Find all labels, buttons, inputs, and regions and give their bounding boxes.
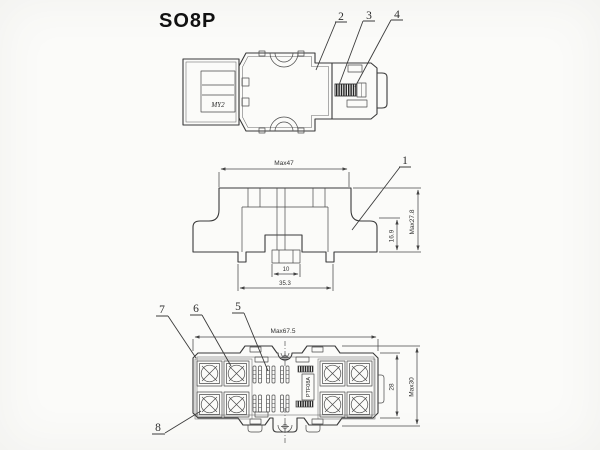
release-clip-top: [242, 78, 249, 86]
hatched-slot: [298, 366, 313, 372]
dim-label-inner-height: 28: [389, 383, 396, 391]
hatched-slot: [296, 401, 313, 407]
bump-slot: [312, 347, 323, 352]
bump-slot: [312, 419, 323, 424]
dim-label-base-width: 35.3: [279, 281, 291, 287]
dim-label-overall-width: Max47: [274, 160, 294, 167]
callout-2: 2: [338, 11, 344, 23]
screw-terminal: [197, 392, 222, 417]
callout-4: 4: [394, 9, 400, 21]
relay-model-label: MY2: [210, 101, 225, 109]
rail-clip-lines: [279, 250, 293, 263]
rail-clip: [272, 250, 300, 263]
relay-label-divider: [202, 85, 234, 95]
callout-5: 5: [235, 301, 241, 313]
contact-slot-pair: [281, 366, 290, 383]
screw-terminal: [347, 392, 372, 417]
mounting-notch-bottom: [270, 117, 298, 131]
mounting-notch-top: [270, 53, 298, 67]
callout-8: 8: [155, 422, 161, 434]
release-clip-bottom: [242, 98, 249, 106]
callout-6: 6: [193, 303, 199, 315]
drawing-canvas: SO8P MY2 2 3 4: [0, 0, 600, 450]
dim-label-body-height: 16.9: [389, 229, 396, 242]
screw-terminal: [320, 361, 345, 386]
ext-lines-max47: [219, 172, 349, 187]
dim-label-overall-height: Max27.8: [409, 209, 416, 234]
screw-terminal: [197, 361, 222, 386]
contact-slot-pair: [267, 366, 276, 383]
foot: [306, 425, 320, 432]
latch-tab: [377, 73, 387, 108]
callout-3: 3: [366, 10, 372, 22]
detail-slot: [255, 412, 268, 417]
screw-terminal: [347, 361, 372, 386]
screw-terminal: [224, 361, 249, 386]
bottom-view: PTF08A Max67.5 28 Max30 7 6 5 8: [152, 301, 420, 444]
dim-label-clip-width: 10: [283, 267, 290, 273]
foot: [248, 425, 262, 432]
detail-slot: [255, 357, 268, 362]
engineering-drawing-page: SO8P MY2 2 3 4: [0, 0, 600, 450]
contact-slot-pair: [253, 395, 262, 412]
front-view: Max47 Max27.8 16.9 10 35.3 1: [193, 155, 421, 291]
ext-lines-max675: [193, 339, 378, 351]
side-tab: [378, 375, 384, 403]
dim-label-bottom-width: Max67.5: [271, 328, 296, 335]
screw-terminal: [320, 392, 345, 417]
contact-slot-pair: [253, 366, 262, 383]
latch-spring-hatched: [335, 84, 356, 96]
pin-channels: [248, 188, 325, 207]
leader-line-4: [355, 20, 403, 87]
callout-7: 7: [159, 304, 165, 316]
center-channel: [277, 207, 285, 250]
latch-top-slot: [348, 65, 362, 72]
latch-bottom-slot: [347, 100, 367, 107]
screw-terminal: [224, 392, 249, 417]
contact-slot-pair: [267, 395, 276, 412]
leader-line-6: [190, 315, 231, 366]
callout-1: 1: [402, 155, 408, 167]
page-title: SO8P: [159, 10, 216, 32]
detail-slot: [296, 357, 309, 362]
relay-block-outline: [183, 59, 239, 125]
bump-slot: [250, 419, 261, 424]
leader-line-7: [156, 316, 196, 358]
socket-model-label: PTF08A: [306, 377, 312, 398]
leader-line-3: [339, 21, 375, 85]
dim-label-bottom-height: Max30: [409, 377, 416, 397]
